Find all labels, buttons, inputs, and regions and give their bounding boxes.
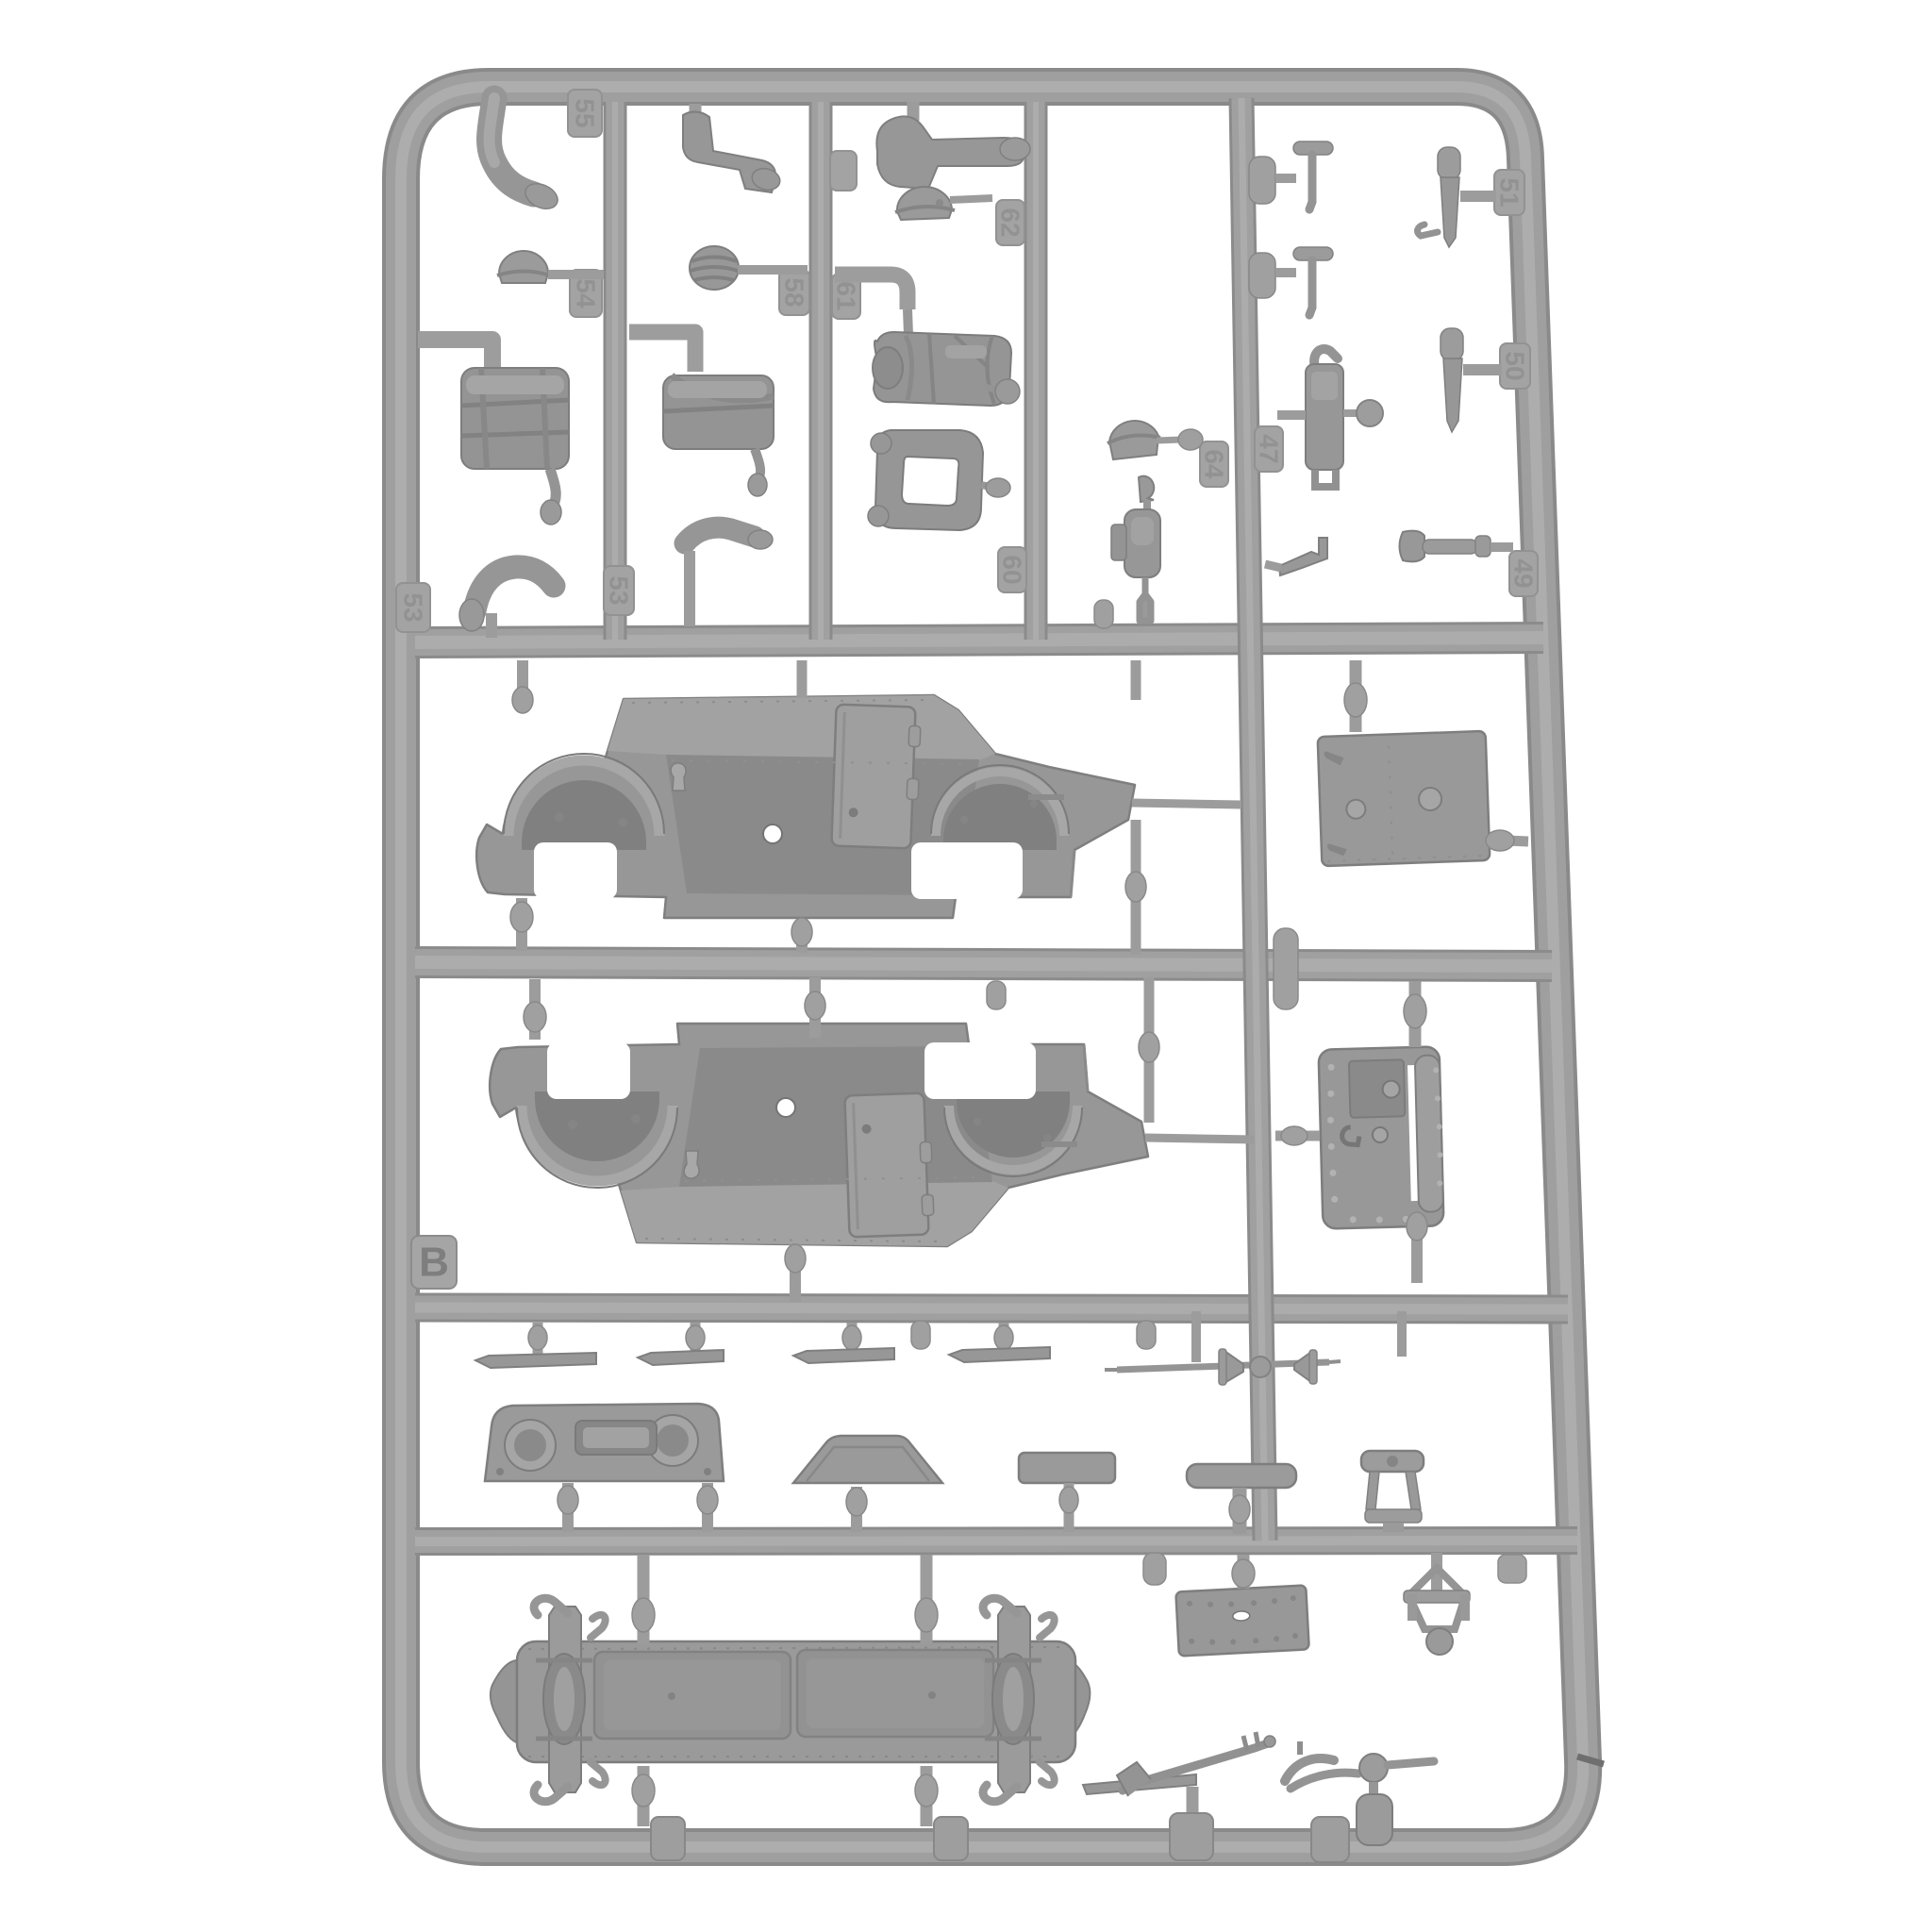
svg-text:60: 60 — [998, 555, 1027, 584]
svg-text:47: 47 — [1255, 434, 1284, 463]
svg-text:49: 49 — [1509, 558, 1539, 588]
svg-text:54: 54 — [572, 278, 601, 308]
svg-text:51: 51 — [1495, 177, 1524, 207]
svg-text:61: 61 — [832, 281, 861, 310]
svg-text:50: 50 — [1501, 351, 1530, 380]
svg-text:53: 53 — [605, 575, 634, 605]
svg-text:53: 53 — [399, 592, 428, 622]
svg-text:55: 55 — [571, 98, 600, 127]
svg-text:B: B — [419, 1240, 449, 1286]
svg-text:62: 62 — [996, 208, 1025, 237]
svg-text:58: 58 — [780, 277, 809, 307]
svg-text:64: 64 — [1200, 449, 1229, 479]
